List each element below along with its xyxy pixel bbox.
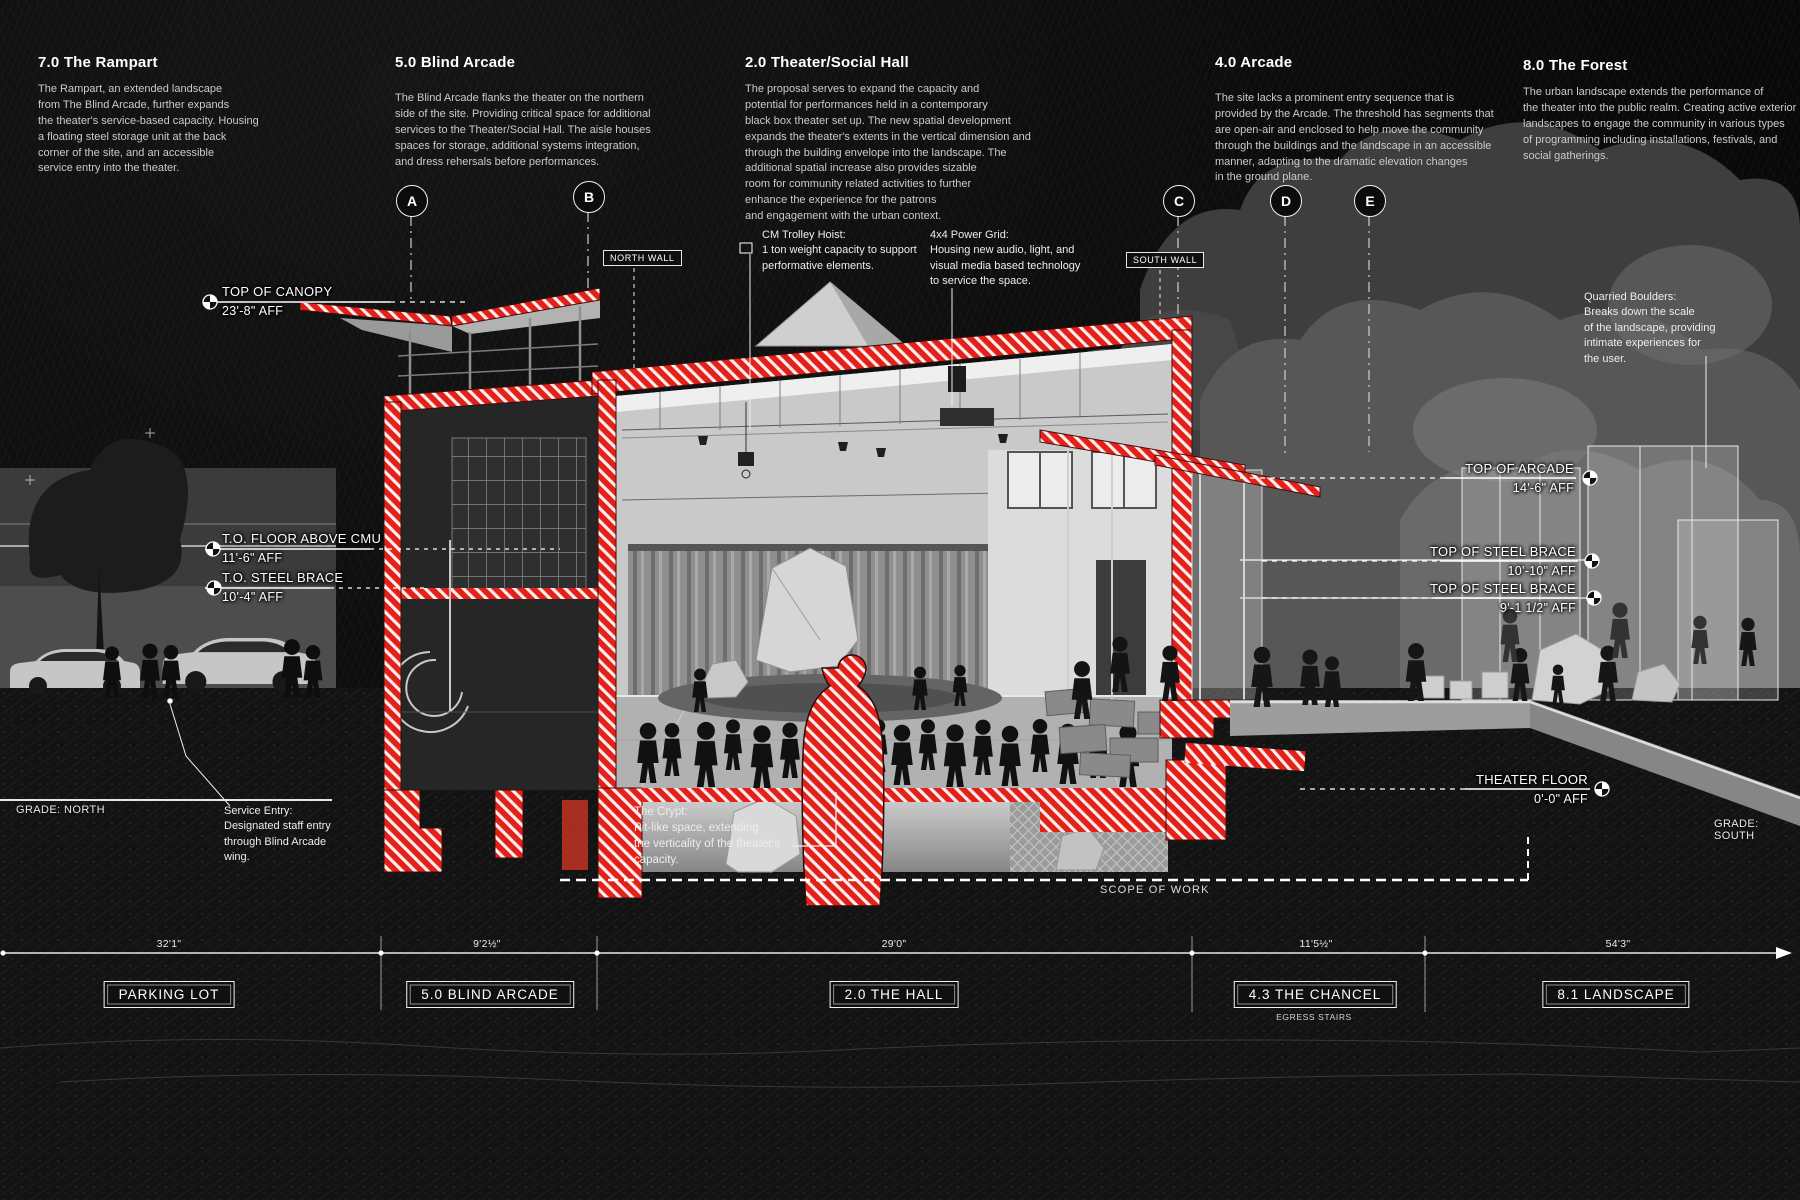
section-note-body: The Blind Arcade flanks the theater on t…	[395, 91, 735, 171]
section-note-arcade: 4.0 Arcade The site lacks a prominent en…	[1215, 52, 1575, 186]
callout-trolley-hoist: CM Trolley Hoist: 1 ton weight capacity …	[762, 228, 917, 274]
callout-quarried-boulders: Quarried Boulders: Breaks down the scale…	[1584, 290, 1715, 367]
dimension-parking: 32'1"	[157, 938, 182, 950]
section-note-theater-hall: 2.0 Theater/Social Hall The proposal ser…	[745, 52, 1135, 225]
section-note-body: The urban landscape extends the performa…	[1523, 85, 1798, 165]
grade-south-label: GRADE: SOUTH	[1714, 818, 1800, 842]
elevation-label-steel-brace-lower: TOP OF STEEL BRACE 9'-1 1/2" AFF	[1376, 581, 1576, 615]
dimension-hall: 29'0"	[882, 938, 907, 950]
egress-stairs-label: EGRESS STAIRS	[1276, 1012, 1352, 1022]
section-note-title: 7.0 The Rampart	[38, 52, 358, 74]
section-note-title: 8.0 The Forest	[1523, 55, 1798, 77]
elevation-label-steel-brace-upper: TOP OF STEEL BRACE 10'-10" AFF	[1376, 544, 1576, 578]
elevation-label-theater-floor: THEATER FLOOR 0'-0" AFF	[1388, 772, 1588, 806]
dimension-blind-arcade: 9'2½"	[473, 938, 501, 950]
dimension-landscape: 54'3"	[1606, 938, 1631, 950]
section-note-body: The proposal serves to expand the capaci…	[745, 82, 1135, 225]
zone-label-landscape: 8.1 LANDSCAPE	[1542, 981, 1689, 1008]
arcade-window-grid	[452, 438, 586, 596]
scope-of-work-label: SCOPE OF WORK	[1100, 884, 1210, 896]
section-note-forest: 8.0 The Forest The urban landscape exten…	[1523, 55, 1798, 164]
callout-service-entry: Service Entry: Designated staff entry th…	[224, 804, 331, 866]
elevation-marker	[1587, 591, 1601, 605]
elevation-label-canopy: TOP OF CANOPY 23'-8" AFF	[222, 284, 332, 318]
south-wall-tag: SOUTH WALL	[1126, 252, 1204, 268]
elevation-marker	[1585, 554, 1599, 568]
south-wall	[1172, 330, 1192, 702]
elevation-label-top-of-arcade: TOP OF ARCADE 14'-6" AFF	[1374, 461, 1574, 495]
elevation-marker	[1595, 782, 1609, 796]
section-note-body: The Rampart, an extended landscape from …	[38, 82, 358, 178]
section-note-title: 4.0 Arcade	[1215, 52, 1575, 74]
power-grid-unit	[940, 408, 994, 426]
callout-power-grid: 4x4 Power Grid: Housing new audio, light…	[930, 228, 1080, 290]
zone-label-blind-arcade: 5.0 BLIND ARCADE	[406, 981, 574, 1008]
callout-crypt: The Crypt: Pit-like space, extending the…	[634, 804, 780, 868]
grid-marker-c: C	[1163, 185, 1195, 217]
zone-label-hall: 2.0 THE HALL	[830, 981, 959, 1008]
section-note-rampart: 7.0 The Rampart The Rampart, an extended…	[38, 52, 358, 177]
grid-marker-a: A	[396, 185, 428, 217]
elevation-marker	[207, 581, 221, 595]
speaker	[948, 366, 966, 392]
dimension-chancel: 11'5½"	[1299, 938, 1332, 950]
north-wall	[598, 380, 616, 790]
north-wall-tag: NORTH WALL	[603, 250, 682, 266]
elevation-marker	[203, 295, 217, 309]
elevation-marker	[1583, 471, 1597, 485]
section-note-body: The site lacks a prominent entry sequenc…	[1215, 91, 1575, 187]
section-note-title: 2.0 Theater/Social Hall	[745, 52, 1135, 74]
section-note-title: 5.0 Blind Arcade	[395, 52, 735, 74]
zone-label-parking-lot: PARKING LOT	[104, 981, 235, 1008]
grid-marker-d: D	[1270, 185, 1302, 217]
zone-label-chancel: 4.3 THE CHANCEL	[1234, 981, 1397, 1008]
grade-north-label: GRADE: NORTH	[16, 804, 105, 816]
elevation-label-cmu-floor: T.O. FLOOR ABOVE CMU 11'-6" AFF	[222, 531, 381, 565]
elevation-marker	[206, 542, 220, 556]
section-note-blind-arcade: 5.0 Blind Arcade The Blind Arcade flanks…	[395, 52, 735, 170]
grid-marker-e: E	[1354, 185, 1386, 217]
grid-marker-b: B	[573, 181, 605, 213]
presentation-board: 7.0 The Rampart The Rampart, an extended…	[0, 0, 1800, 1200]
elevation-label-steel-brace: T.O. STEEL BRACE 10'-4" AFF	[222, 570, 343, 604]
